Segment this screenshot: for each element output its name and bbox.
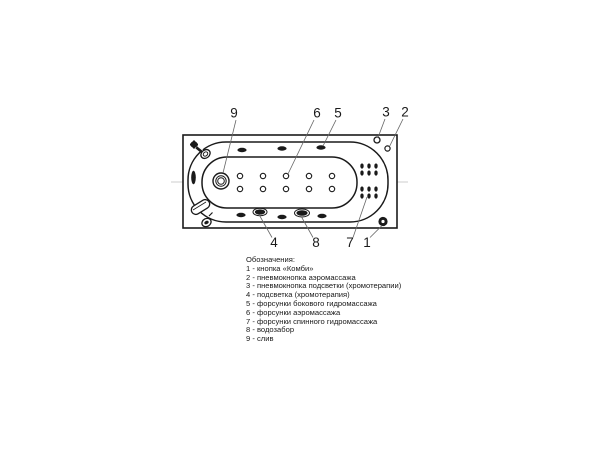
callout-9: 9	[230, 106, 238, 121]
tub-frame	[183, 135, 397, 228]
legend: Обозначения: 1 - кнопка «Комби» 2 - пнев…	[246, 256, 401, 344]
legend-item-9: 9 - слив	[246, 335, 401, 344]
callout-8: 8	[312, 235, 320, 250]
callout-4: 4	[270, 235, 278, 250]
overflow-mark	[191, 171, 196, 185]
callout-5: 5	[334, 106, 342, 121]
bathtub-diagram: 9 6 5 3 2 4 8 7 1	[0, 0, 600, 450]
combi-button	[378, 217, 387, 226]
callout-2: 2	[401, 105, 409, 120]
light-button	[374, 137, 380, 143]
callout-1: 1	[363, 235, 371, 250]
air-button	[385, 146, 390, 151]
callout-3: 3	[382, 105, 390, 120]
callout-7: 7	[346, 235, 354, 250]
page: 9 6 5 3 2 4 8 7 1 Обозначения: 1 - кнопк…	[0, 0, 600, 450]
callout-6: 6	[313, 106, 321, 121]
